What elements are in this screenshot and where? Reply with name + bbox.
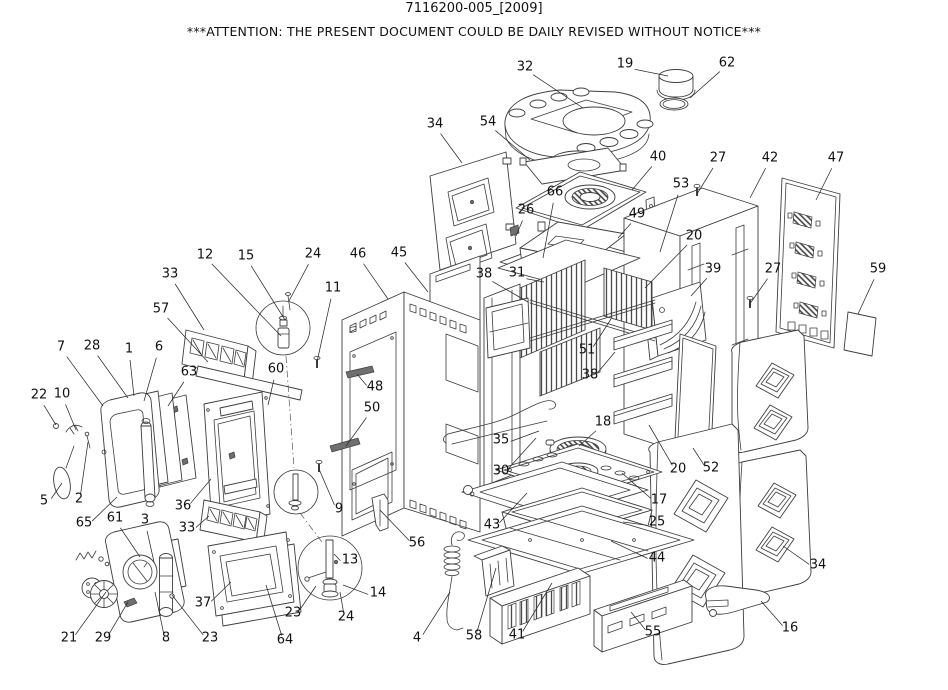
part-10-latch-handle [66, 425, 82, 468]
leader-line-24 [289, 264, 309, 301]
part-label-17: 17 [651, 493, 668, 508]
part-34-left-side-panel [430, 152, 516, 272]
detail-circle-top-fastener [256, 293, 310, 355]
part-label-51: 51 [579, 343, 596, 358]
part-label-65: 65 [76, 516, 93, 531]
part-label-26: 26 [518, 203, 535, 218]
part-56-foot-bracket [372, 494, 388, 531]
part-label-34: 34 [810, 558, 827, 573]
part-37-lower-frame [208, 532, 294, 616]
part-label-37: 37 [195, 596, 212, 611]
part-19-flue-cap [657, 70, 695, 101]
part-label-46: 46 [350, 247, 367, 262]
part-label-20: 20 [686, 229, 703, 244]
part-58-side-bracket [474, 546, 514, 596]
spring-and-screw [76, 551, 109, 566]
part-label-6: 6 [155, 340, 163, 355]
part-label-33: 33 [162, 267, 179, 282]
detail-circle-leg-foot [298, 536, 362, 600]
part-label-49: 49 [629, 207, 646, 222]
part-label-43: 43 [484, 518, 501, 533]
leader-line-13 [334, 554, 340, 561]
part-label-15: 15 [238, 249, 255, 264]
leader-line-28 [98, 356, 128, 398]
part-label-58: 58 [466, 629, 483, 644]
part-label-19: 19 [617, 57, 634, 72]
leader-line-45 [405, 262, 428, 292]
part-label-48: 48 [367, 380, 384, 395]
part-label-29: 29 [95, 631, 112, 646]
part-11-bolt [314, 356, 320, 368]
part-label-2: 2 [75, 492, 83, 507]
part-label-34: 34 [427, 117, 444, 132]
leader-line-9 [319, 469, 334, 505]
leader-line-46 [363, 264, 388, 299]
part-label-63: 63 [181, 365, 198, 380]
part-label-8: 8 [162, 631, 170, 646]
part-label-42: 42 [762, 151, 779, 166]
part-label-30: 30 [493, 464, 510, 479]
part-label-35: 35 [493, 433, 510, 448]
part-label-59: 59 [870, 262, 887, 277]
part-label-60: 60 [268, 362, 285, 377]
part-label-21: 21 [61, 631, 78, 646]
part-label-22: 22 [31, 388, 48, 403]
part-label-56: 56 [409, 536, 426, 551]
part-7-main-door [101, 393, 159, 507]
leader-line-40 [632, 166, 652, 190]
part-label-44: 44 [649, 551, 666, 566]
part-label-57: 57 [153, 302, 170, 317]
leader-line-16 [761, 601, 783, 626]
leader-line-42 [750, 168, 766, 198]
part-label-28: 28 [84, 339, 101, 354]
leader-line-36 [190, 479, 211, 504]
part-label-18: 18 [595, 415, 612, 430]
part-label-61: 61 [107, 511, 124, 526]
part-label-27: 27 [765, 262, 782, 277]
leader-line-62 [690, 72, 720, 98]
leader-line-14 [343, 585, 368, 594]
part-label-24: 24 [338, 610, 355, 625]
part-label-66: 66 [547, 185, 564, 200]
leader-line-15 [251, 266, 285, 320]
part-label-24: 24 [305, 247, 322, 262]
part-label-38: 38 [476, 267, 493, 282]
part-label-55: 55 [645, 625, 662, 640]
part-label-1: 1 [125, 342, 133, 357]
part-label-23: 23 [285, 606, 302, 621]
leader-line-7 [67, 357, 103, 406]
part-label-39: 39 [705, 262, 722, 277]
leader-line-23 [300, 586, 316, 610]
leader-line-22 [44, 405, 56, 425]
part-label-38: 38 [582, 368, 599, 383]
part-label-14: 14 [370, 586, 387, 601]
part-34-tile-column-upper [732, 330, 808, 453]
part-label-20: 20 [670, 462, 687, 477]
part-label-41: 41 [509, 628, 526, 643]
part-label-47: 47 [828, 151, 845, 166]
part-8-hinge-pillar [160, 554, 174, 617]
part-4-poker-tool [444, 532, 464, 630]
part-47-outer-louver-panel [776, 178, 840, 348]
part-label-27: 27 [710, 151, 727, 166]
ash-door-assembly [105, 522, 184, 622]
part-label-9: 9 [335, 502, 343, 517]
part-21-damper-knob [82, 578, 118, 608]
part-label-31: 31 [509, 266, 526, 281]
leader-line-34 [441, 134, 462, 163]
leader-line-59 [858, 279, 874, 314]
part-label-32: 32 [517, 60, 534, 75]
leader-line-4 [423, 592, 450, 635]
part-label-25: 25 [649, 515, 666, 530]
part-label-5: 5 [40, 494, 48, 509]
part-34-tile-column-lower [732, 450, 811, 597]
part-46-outer-casing [342, 292, 480, 536]
detail-circle-mid-fastener [274, 470, 318, 514]
part-label-50: 50 [364, 401, 381, 416]
leader-line-33 [175, 284, 204, 330]
part-label-4: 4 [413, 631, 421, 646]
exploded-diagram: 3219623454402742476626534920392759121524… [0, 0, 948, 690]
part-label-52: 52 [703, 461, 720, 476]
part-label-54: 54 [480, 115, 497, 130]
part-label-7: 7 [57, 340, 65, 355]
leader-line-12 [212, 264, 281, 336]
part-label-64: 64 [277, 633, 294, 648]
leader-line-1 [130, 360, 134, 396]
part-label-23: 23 [202, 631, 219, 646]
part-label-12: 12 [197, 248, 214, 263]
leader-line-21 [75, 592, 106, 635]
part-22-screw [54, 424, 59, 429]
document-page: 7116200-005_[2009] ***ATTENTION: THE PRE… [0, 0, 948, 690]
part-62-flue-gasket-ring [660, 98, 688, 110]
part-label-36: 36 [175, 499, 192, 514]
part-9-bolt [316, 460, 322, 472]
part-59-spacer-sheet [844, 312, 876, 356]
part-label-16: 16 [782, 621, 799, 636]
part-label-13: 13 [342, 553, 359, 568]
part-label-10: 10 [54, 387, 71, 402]
part-label-53: 53 [673, 177, 690, 192]
part-label-33: 33 [179, 521, 196, 536]
leader-line-11 [317, 299, 331, 362]
firebox-front-frame [486, 298, 530, 358]
part-label-11: 11 [325, 281, 342, 296]
centerline [286, 356, 294, 468]
part-label-62: 62 [719, 56, 736, 71]
leader-line-10 [66, 404, 76, 430]
part-label-3: 3 [141, 513, 149, 528]
part-label-45: 45 [391, 246, 408, 261]
part-label-40: 40 [650, 150, 667, 165]
leader-line-2 [81, 442, 88, 494]
